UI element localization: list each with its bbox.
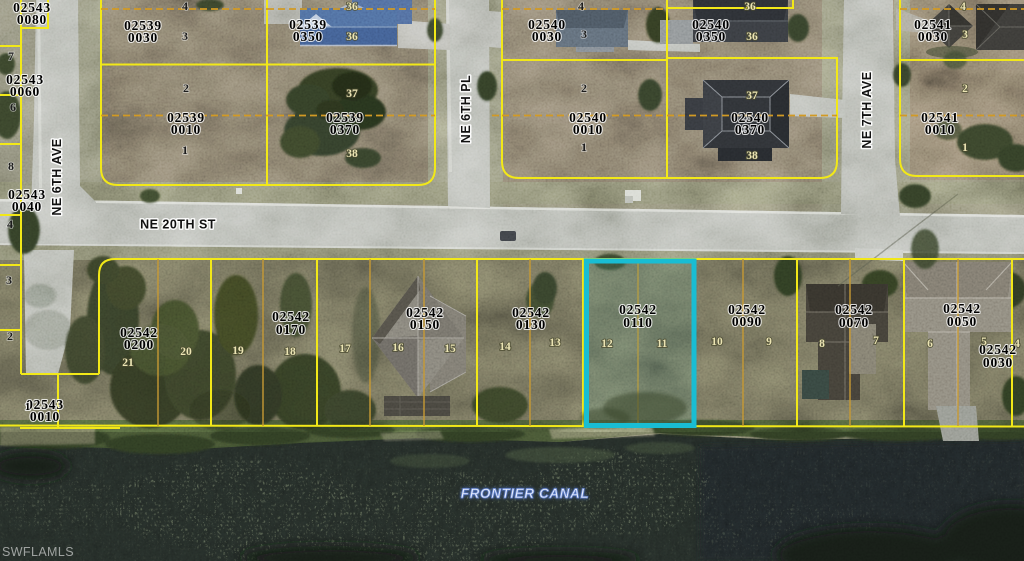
svg-text:9: 9 (766, 336, 772, 348)
svg-text:2: 2 (183, 81, 189, 95)
svg-text:FRONTIER CANAL: FRONTIER CANAL (461, 486, 589, 501)
svg-text:36: 36 (744, 1, 756, 13)
svg-text:0030: 0030 (983, 355, 1013, 370)
svg-text:10: 10 (711, 336, 723, 348)
svg-text:0350: 0350 (293, 29, 323, 44)
svg-text:0030: 0030 (128, 30, 158, 45)
svg-text:7: 7 (873, 335, 879, 347)
svg-text:NE 7TH AVE: NE 7TH AVE (860, 71, 874, 148)
svg-text:0040: 0040 (12, 199, 42, 214)
svg-text:5: 5 (981, 336, 987, 348)
svg-text:NE 6TH PL: NE 6TH PL (459, 75, 473, 143)
svg-text:6: 6 (10, 100, 16, 114)
svg-text:1: 1 (182, 143, 188, 157)
svg-text:0150: 0150 (410, 317, 440, 332)
svg-text:3: 3 (581, 27, 587, 41)
svg-text:4: 4 (578, 0, 584, 13)
svg-text:0090: 0090 (732, 314, 762, 329)
svg-text:12: 12 (601, 338, 613, 350)
svg-text:0010: 0010 (573, 122, 603, 137)
svg-text:19: 19 (232, 345, 244, 357)
svg-text:6: 6 (927, 338, 933, 350)
svg-text:SWFLAMLS: SWFLAMLS (2, 545, 74, 559)
svg-text:37: 37 (746, 90, 758, 102)
svg-text:0170: 0170 (276, 322, 306, 337)
svg-text:1: 1 (962, 142, 968, 154)
svg-text:7: 7 (8, 49, 14, 63)
svg-text:16: 16 (392, 342, 404, 354)
svg-text:NE 20TH ST: NE 20TH ST (140, 218, 216, 232)
svg-text:0010: 0010 (171, 122, 201, 137)
svg-text:0050: 0050 (947, 314, 977, 329)
svg-text:0130: 0130 (516, 317, 546, 332)
svg-text:0030: 0030 (918, 29, 948, 44)
svg-text:2: 2 (7, 329, 13, 343)
svg-text:36: 36 (346, 31, 358, 43)
svg-text:NE 6TH AVE: NE 6TH AVE (50, 138, 64, 215)
svg-text:37: 37 (346, 88, 358, 100)
svg-text:15: 15 (444, 343, 456, 355)
svg-text:14: 14 (499, 341, 511, 353)
svg-text:2: 2 (962, 83, 968, 95)
svg-text:3: 3 (182, 29, 188, 43)
svg-text:38: 38 (746, 150, 758, 162)
svg-text:0370: 0370 (735, 122, 765, 137)
svg-text:4: 4 (1014, 338, 1020, 350)
svg-text:0010: 0010 (30, 409, 60, 424)
svg-text:13: 13 (549, 337, 561, 349)
svg-text:1: 1 (581, 140, 587, 154)
svg-text:0370: 0370 (330, 122, 360, 137)
svg-text:36: 36 (746, 31, 758, 43)
svg-text:11: 11 (657, 338, 668, 350)
svg-text:0110: 0110 (623, 315, 652, 330)
svg-text:20: 20 (180, 346, 192, 358)
svg-text:21: 21 (122, 357, 134, 369)
svg-text:0350: 0350 (696, 29, 726, 44)
svg-text:8: 8 (819, 338, 825, 350)
svg-text:4: 4 (182, 0, 188, 13)
svg-text:17: 17 (339, 343, 351, 355)
svg-text:1: 1 (25, 401, 31, 413)
svg-text:0060: 0060 (10, 84, 40, 99)
svg-text:0080: 0080 (17, 12, 47, 27)
svg-text:2: 2 (581, 81, 587, 95)
svg-text:3: 3 (962, 29, 968, 41)
svg-text:0030: 0030 (532, 29, 562, 44)
svg-text:18: 18 (284, 346, 296, 358)
svg-text:36: 36 (346, 1, 358, 13)
svg-text:8: 8 (8, 159, 14, 173)
svg-text:4: 4 (7, 217, 13, 231)
svg-text:0010: 0010 (925, 122, 955, 137)
svg-text:4: 4 (960, 1, 966, 13)
svg-text:38: 38 (346, 148, 358, 160)
svg-text:0200: 0200 (124, 337, 154, 352)
svg-text:0070: 0070 (839, 315, 869, 330)
svg-text:3: 3 (6, 273, 12, 287)
